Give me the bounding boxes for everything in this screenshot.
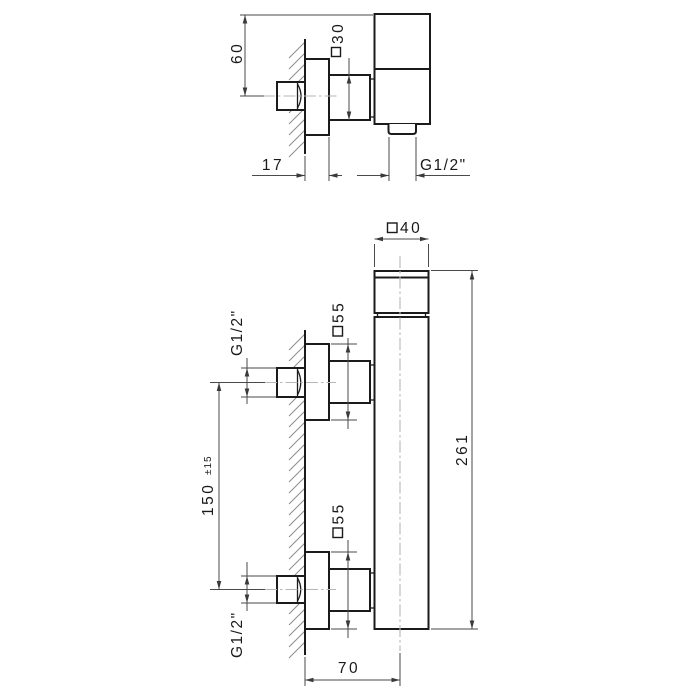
dimension-tolerance-label: ±15 bbox=[203, 455, 214, 475]
dimension-label: 70 bbox=[338, 660, 360, 677]
dimension-70: 70 bbox=[305, 653, 400, 686]
dimension-square-40: 40 bbox=[375, 220, 429, 267]
dimension-label: 55 bbox=[331, 502, 348, 524]
mounting-flange bbox=[305, 59, 329, 135]
dimension-label: 261 bbox=[454, 433, 471, 466]
arrowhead bbox=[217, 581, 222, 590]
arrowhead bbox=[305, 678, 314, 683]
dimension-inlet-thread-top: G1/2" bbox=[229, 309, 276, 404]
side-view: 60 30 17 G1/2" bbox=[229, 14, 470, 181]
arrowhead bbox=[470, 621, 475, 630]
arrowhead bbox=[217, 383, 222, 392]
dimension-outlet-thread: G1/2" bbox=[357, 137, 470, 181]
arrowhead bbox=[243, 88, 248, 97]
arrowhead bbox=[245, 389, 250, 398]
dimension-label: G1/2" bbox=[420, 157, 467, 174]
technical-drawing-page: 60 30 17 G1/2" bbox=[0, 0, 700, 700]
dimension-label: 60 bbox=[229, 42, 246, 64]
arrowhead bbox=[245, 368, 250, 377]
arrowhead bbox=[346, 552, 351, 561]
arrowhead bbox=[420, 237, 429, 242]
square-symbol-icon bbox=[333, 327, 343, 337]
square-symbol-icon bbox=[332, 48, 341, 57]
dimension-17: 17 bbox=[252, 137, 342, 181]
dimension-label: 40 bbox=[400, 220, 422, 237]
mixer-column bbox=[375, 317, 429, 629]
dimension-label: G1/2" bbox=[229, 611, 246, 658]
square-symbol-icon bbox=[388, 223, 398, 233]
dimension-label: G1/2" bbox=[229, 309, 246, 356]
dimension-label: 30 bbox=[330, 22, 347, 44]
arrowhead bbox=[245, 595, 250, 604]
dimension-label: 55 bbox=[331, 301, 348, 323]
arrowhead bbox=[375, 237, 384, 242]
square-symbol-icon bbox=[333, 528, 343, 538]
dimension-label: 17 bbox=[262, 157, 284, 174]
shower-mixer-technical-drawing: 60 30 17 G1/2" bbox=[0, 0, 700, 700]
dimension-label: 150 bbox=[200, 483, 217, 516]
arrowhead bbox=[346, 344, 351, 353]
outlet-spout bbox=[389, 124, 417, 134]
arrowhead bbox=[297, 173, 306, 178]
front-view: 40 261 55 55 bbox=[200, 220, 478, 686]
arrowhead bbox=[329, 173, 338, 178]
dimension-150: 150 ±15 bbox=[200, 383, 265, 590]
arrowhead bbox=[243, 15, 248, 24]
arrowhead bbox=[245, 576, 250, 585]
arrowhead bbox=[346, 412, 351, 421]
dimension-261: 261 bbox=[431, 271, 478, 630]
arrowhead bbox=[346, 621, 351, 630]
arrowhead bbox=[470, 271, 475, 280]
arrowhead bbox=[381, 173, 390, 178]
dimension-inlet-thread-bottom: G1/2" bbox=[229, 562, 276, 658]
arrowhead bbox=[392, 678, 401, 683]
mounting-flange-bottom bbox=[305, 552, 329, 629]
